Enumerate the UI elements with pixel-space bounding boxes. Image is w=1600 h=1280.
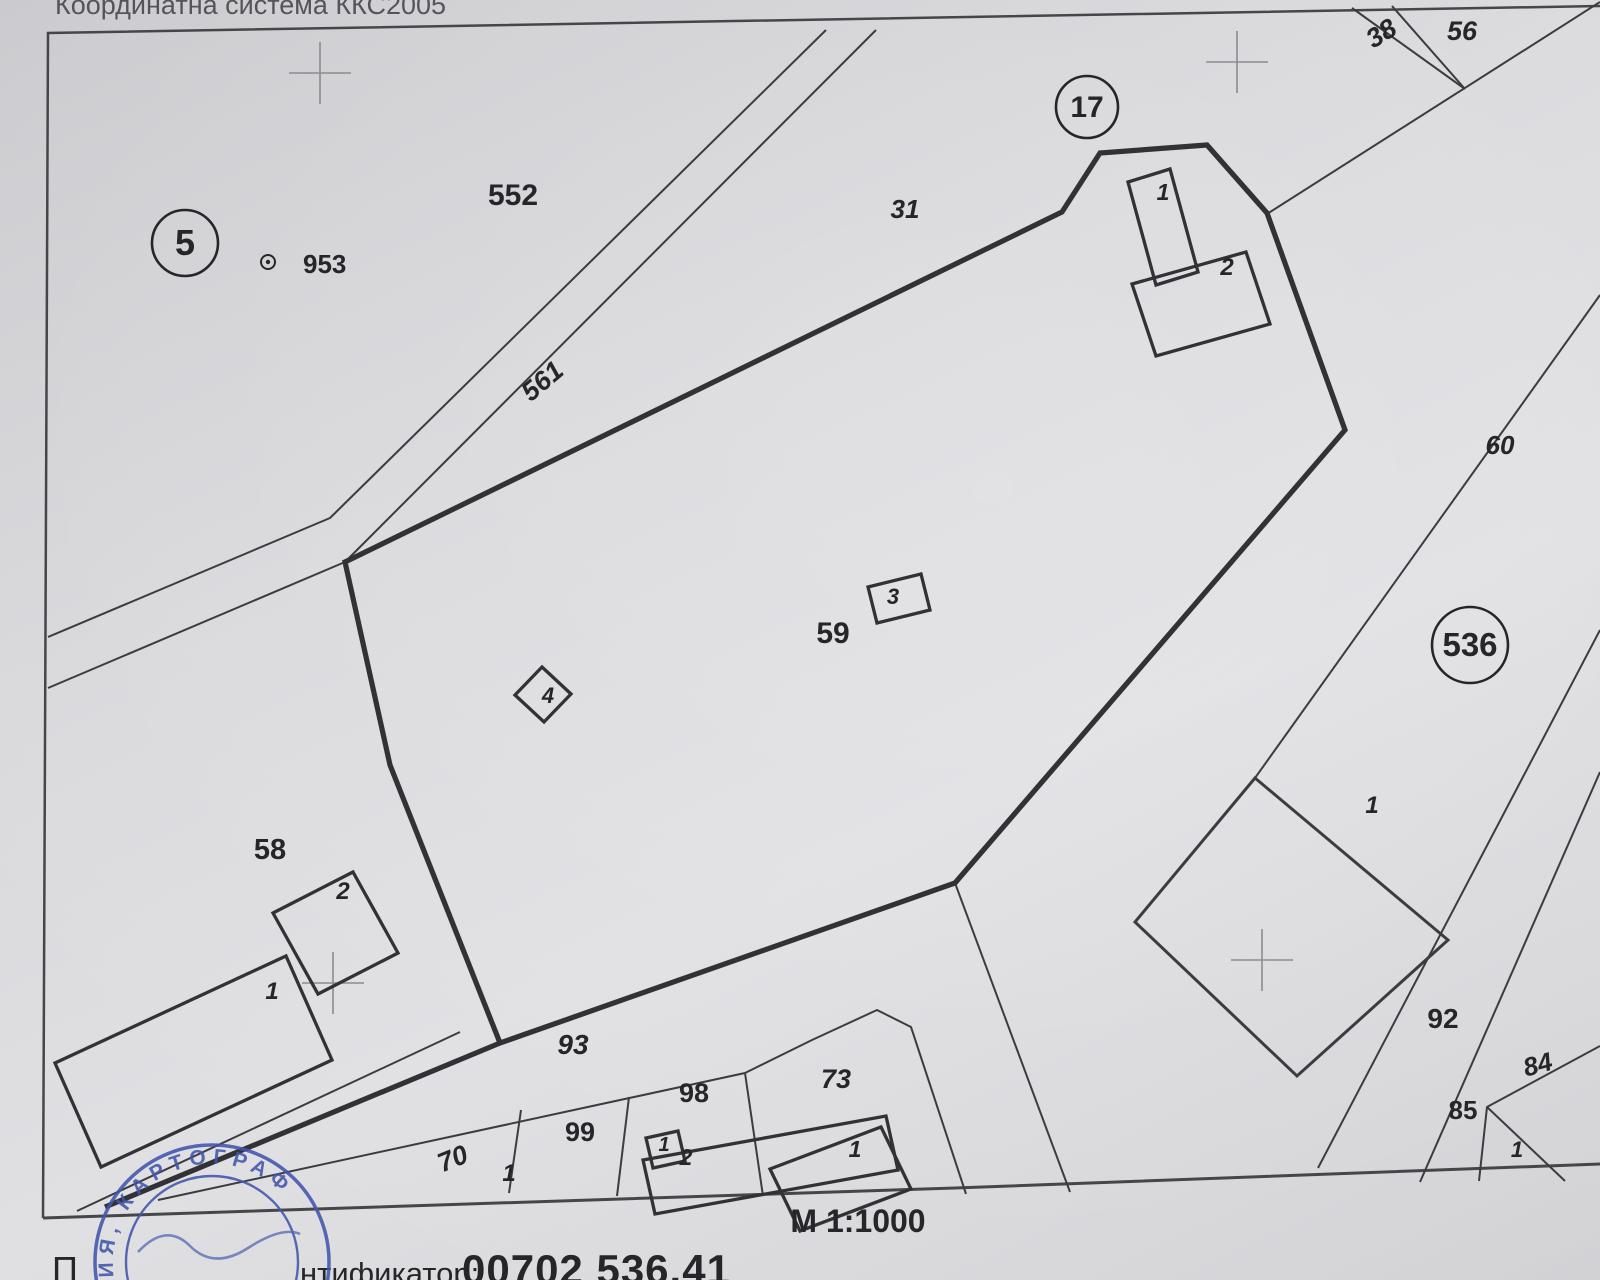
survey-point-label: 953	[303, 249, 346, 279]
parcel-label-99: 99	[565, 1117, 595, 1147]
circled-label-text: 17	[1070, 91, 1103, 124]
building-label-2: 2	[335, 878, 350, 905]
parcel-label-59: 59	[816, 617, 849, 650]
circled-label-text: 536	[1442, 626, 1497, 663]
header-coordinate-system: Координатна система ККС2005	[55, 0, 446, 20]
parcel-label-1: 1	[502, 1160, 515, 1187]
bottom-identifier-value: 00702 536.41	[462, 1246, 731, 1280]
building-label-2: 2	[679, 1144, 693, 1170]
parcel-label-1: 1	[1365, 792, 1378, 819]
building-label-1: 1	[849, 1136, 862, 1162]
circled-label-text: 5	[175, 222, 195, 263]
scale-label: М 1:1000	[790, 1203, 925, 1239]
map-canvas: 5175369535523156156386059589398739970928…	[0, 0, 1600, 1280]
building-label-1: 1	[1157, 179, 1170, 205]
building-label-3: 3	[887, 584, 899, 609]
parcel-label-93: 93	[557, 1029, 589, 1060]
parcel-label-85: 85	[1449, 1095, 1478, 1125]
building-label-1: 1	[265, 978, 278, 1005]
parcel-label-552: 552	[488, 179, 538, 212]
parcel-label-58: 58	[254, 834, 286, 866]
parcel-label-31: 31	[891, 194, 920, 224]
survey-point-dot-icon	[266, 260, 270, 264]
bottom-text-fragment: П	[52, 1249, 78, 1280]
parcel-label-56: 56	[1447, 16, 1478, 46]
parcel-label-98: 98	[679, 1078, 709, 1108]
building-label-2: 2	[1219, 254, 1234, 281]
cadastral-map-scan: 5175369535523156156386059589398739970928…	[0, 0, 1600, 1280]
parcel-label-60: 60	[1486, 430, 1515, 460]
parcel-label-92: 92	[1427, 1003, 1458, 1034]
parcel-label-1: 1	[1511, 1137, 1523, 1162]
parcel-label-73: 73	[821, 1064, 851, 1094]
building-label-4: 4	[541, 683, 554, 708]
building-label-1: 1	[658, 1134, 669, 1156]
